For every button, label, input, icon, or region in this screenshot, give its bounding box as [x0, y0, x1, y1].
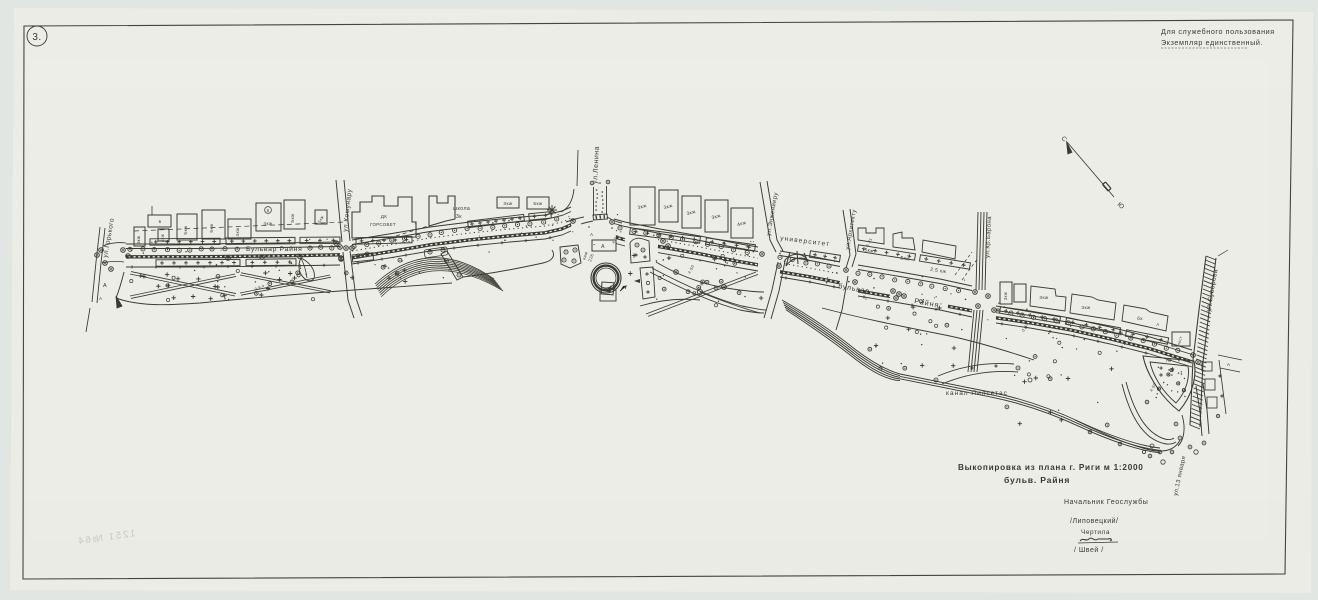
svg-text:А: А — [1227, 362, 1230, 367]
svg-text:ГОРСОВЕТ: ГОРСОВЕТ — [370, 222, 396, 227]
svg-text:4кж: 4кж — [235, 227, 241, 237]
svg-text:Чертила: Чертила — [1081, 529, 1110, 536]
svg-text:канал Пилсетас: канал Пилсетас — [946, 390, 1008, 397]
svg-text:Начальник Геослужбы: Начальник Геослужбы — [1064, 498, 1148, 506]
svg-text:4кж: 4кж — [160, 234, 165, 242]
svg-text:А: А — [103, 283, 107, 289]
svg-text:А: А — [601, 244, 605, 250]
svg-text:/ Швей /: / Швей / — [1074, 546, 1104, 554]
svg-text:А: А — [590, 232, 593, 237]
svg-text:3кж: 3кж — [1081, 305, 1091, 311]
svg-text:Выкопировка из плана г. Риги м: Выкопировка из плана г. Риги м 1:2000 — [958, 463, 1144, 472]
svg-text:3.: 3. — [32, 32, 41, 43]
svg-text:А: А — [1156, 322, 1159, 327]
svg-text:4кж: 4кж — [136, 236, 141, 245]
svg-text:/Липовецкий/: /Липовецкий/ — [1070, 517, 1119, 525]
svg-text:5кж: 5кж — [533, 201, 543, 207]
svg-text:Для служебного пользования: Для служебного пользования — [1161, 27, 1275, 36]
svg-text:А: А — [99, 296, 102, 301]
svg-text:в: в — [159, 219, 162, 224]
svg-text:Экземпляр единственный.: Экземпляр единственный. — [1161, 38, 1263, 47]
svg-text:Бульвар Райня: Бульвар Райня — [246, 245, 302, 253]
svg-text:бульв. Райня: бульв. Райня — [1004, 475, 1070, 485]
svg-text:3к: 3к — [456, 214, 462, 220]
svg-text:3кж: 3кж — [1039, 295, 1049, 301]
svg-text:4кж: 4кж — [263, 221, 273, 227]
svg-text:школа: школа — [453, 206, 470, 212]
svg-text:3кж: 3кж — [1003, 292, 1008, 300]
svg-text:3кж: 3кж — [503, 201, 513, 207]
svg-text:ДК: ДК — [381, 214, 388, 219]
svg-text:А: А — [1166, 358, 1169, 363]
svg-text:5кж: 5кж — [183, 225, 189, 235]
svg-text:8: 8 — [267, 208, 270, 213]
svg-text:5кж: 5кж — [290, 213, 296, 223]
svg-text:бк: бк — [1137, 316, 1143, 322]
